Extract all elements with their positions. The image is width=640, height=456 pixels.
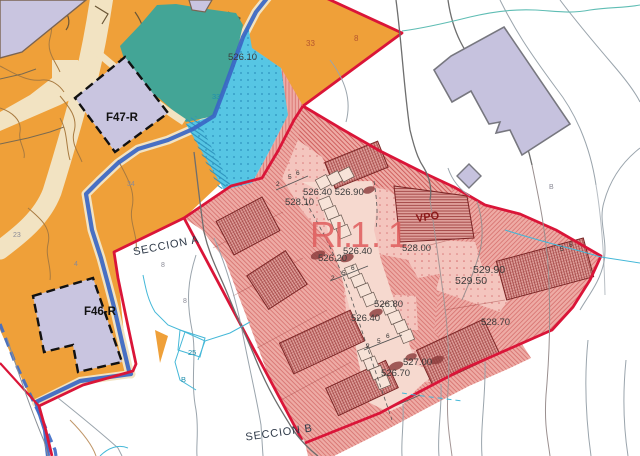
svg-text:F47-R: F47-R	[106, 112, 139, 124]
svg-text:6: 6	[569, 242, 573, 249]
svg-text:B: B	[549, 184, 554, 191]
svg-text:5: 5	[288, 174, 292, 181]
svg-text:528.00: 528.00	[402, 243, 431, 254]
svg-text:5: 5	[560, 246, 564, 253]
svg-text:5: 5	[342, 270, 346, 277]
svg-text:2: 2	[366, 343, 370, 350]
svg-text:4: 4	[74, 261, 78, 268]
svg-text:2: 2	[276, 181, 280, 188]
svg-text:23: 23	[13, 232, 21, 239]
svg-text:F46-R: F46-R	[84, 306, 117, 318]
svg-text:527.00: 527.00	[403, 357, 432, 368]
svg-text:526.80: 526.80	[374, 299, 403, 310]
svg-text:528.10: 528.10	[285, 197, 314, 208]
svg-text:8: 8	[161, 262, 165, 269]
svg-text:25: 25	[188, 348, 196, 357]
svg-text:526.40: 526.40	[351, 313, 380, 324]
svg-text:528.70: 528.70	[481, 317, 510, 328]
svg-text:526.70: 526.70	[381, 368, 410, 379]
svg-text:R: R	[310, 214, 336, 255]
svg-text:526.10: 526.10	[228, 52, 257, 63]
svg-text:8: 8	[183, 298, 187, 305]
svg-text:B: B	[181, 375, 186, 384]
svg-text:529.50: 529.50	[455, 275, 487, 287]
svg-text:34: 34	[127, 181, 135, 188]
svg-text:.: .	[371, 214, 381, 255]
svg-text:2: 2	[331, 275, 335, 282]
svg-text:6: 6	[351, 265, 355, 272]
svg-text:6: 6	[386, 333, 390, 340]
svg-text:526.20: 526.20	[318, 253, 347, 264]
svg-text:526.40: 526.40	[343, 246, 372, 257]
svg-text:33: 33	[212, 92, 220, 101]
svg-text:6: 6	[296, 170, 300, 177]
svg-text:33: 33	[306, 39, 315, 48]
svg-text:5: 5	[377, 338, 381, 345]
svg-text:8: 8	[354, 34, 359, 43]
